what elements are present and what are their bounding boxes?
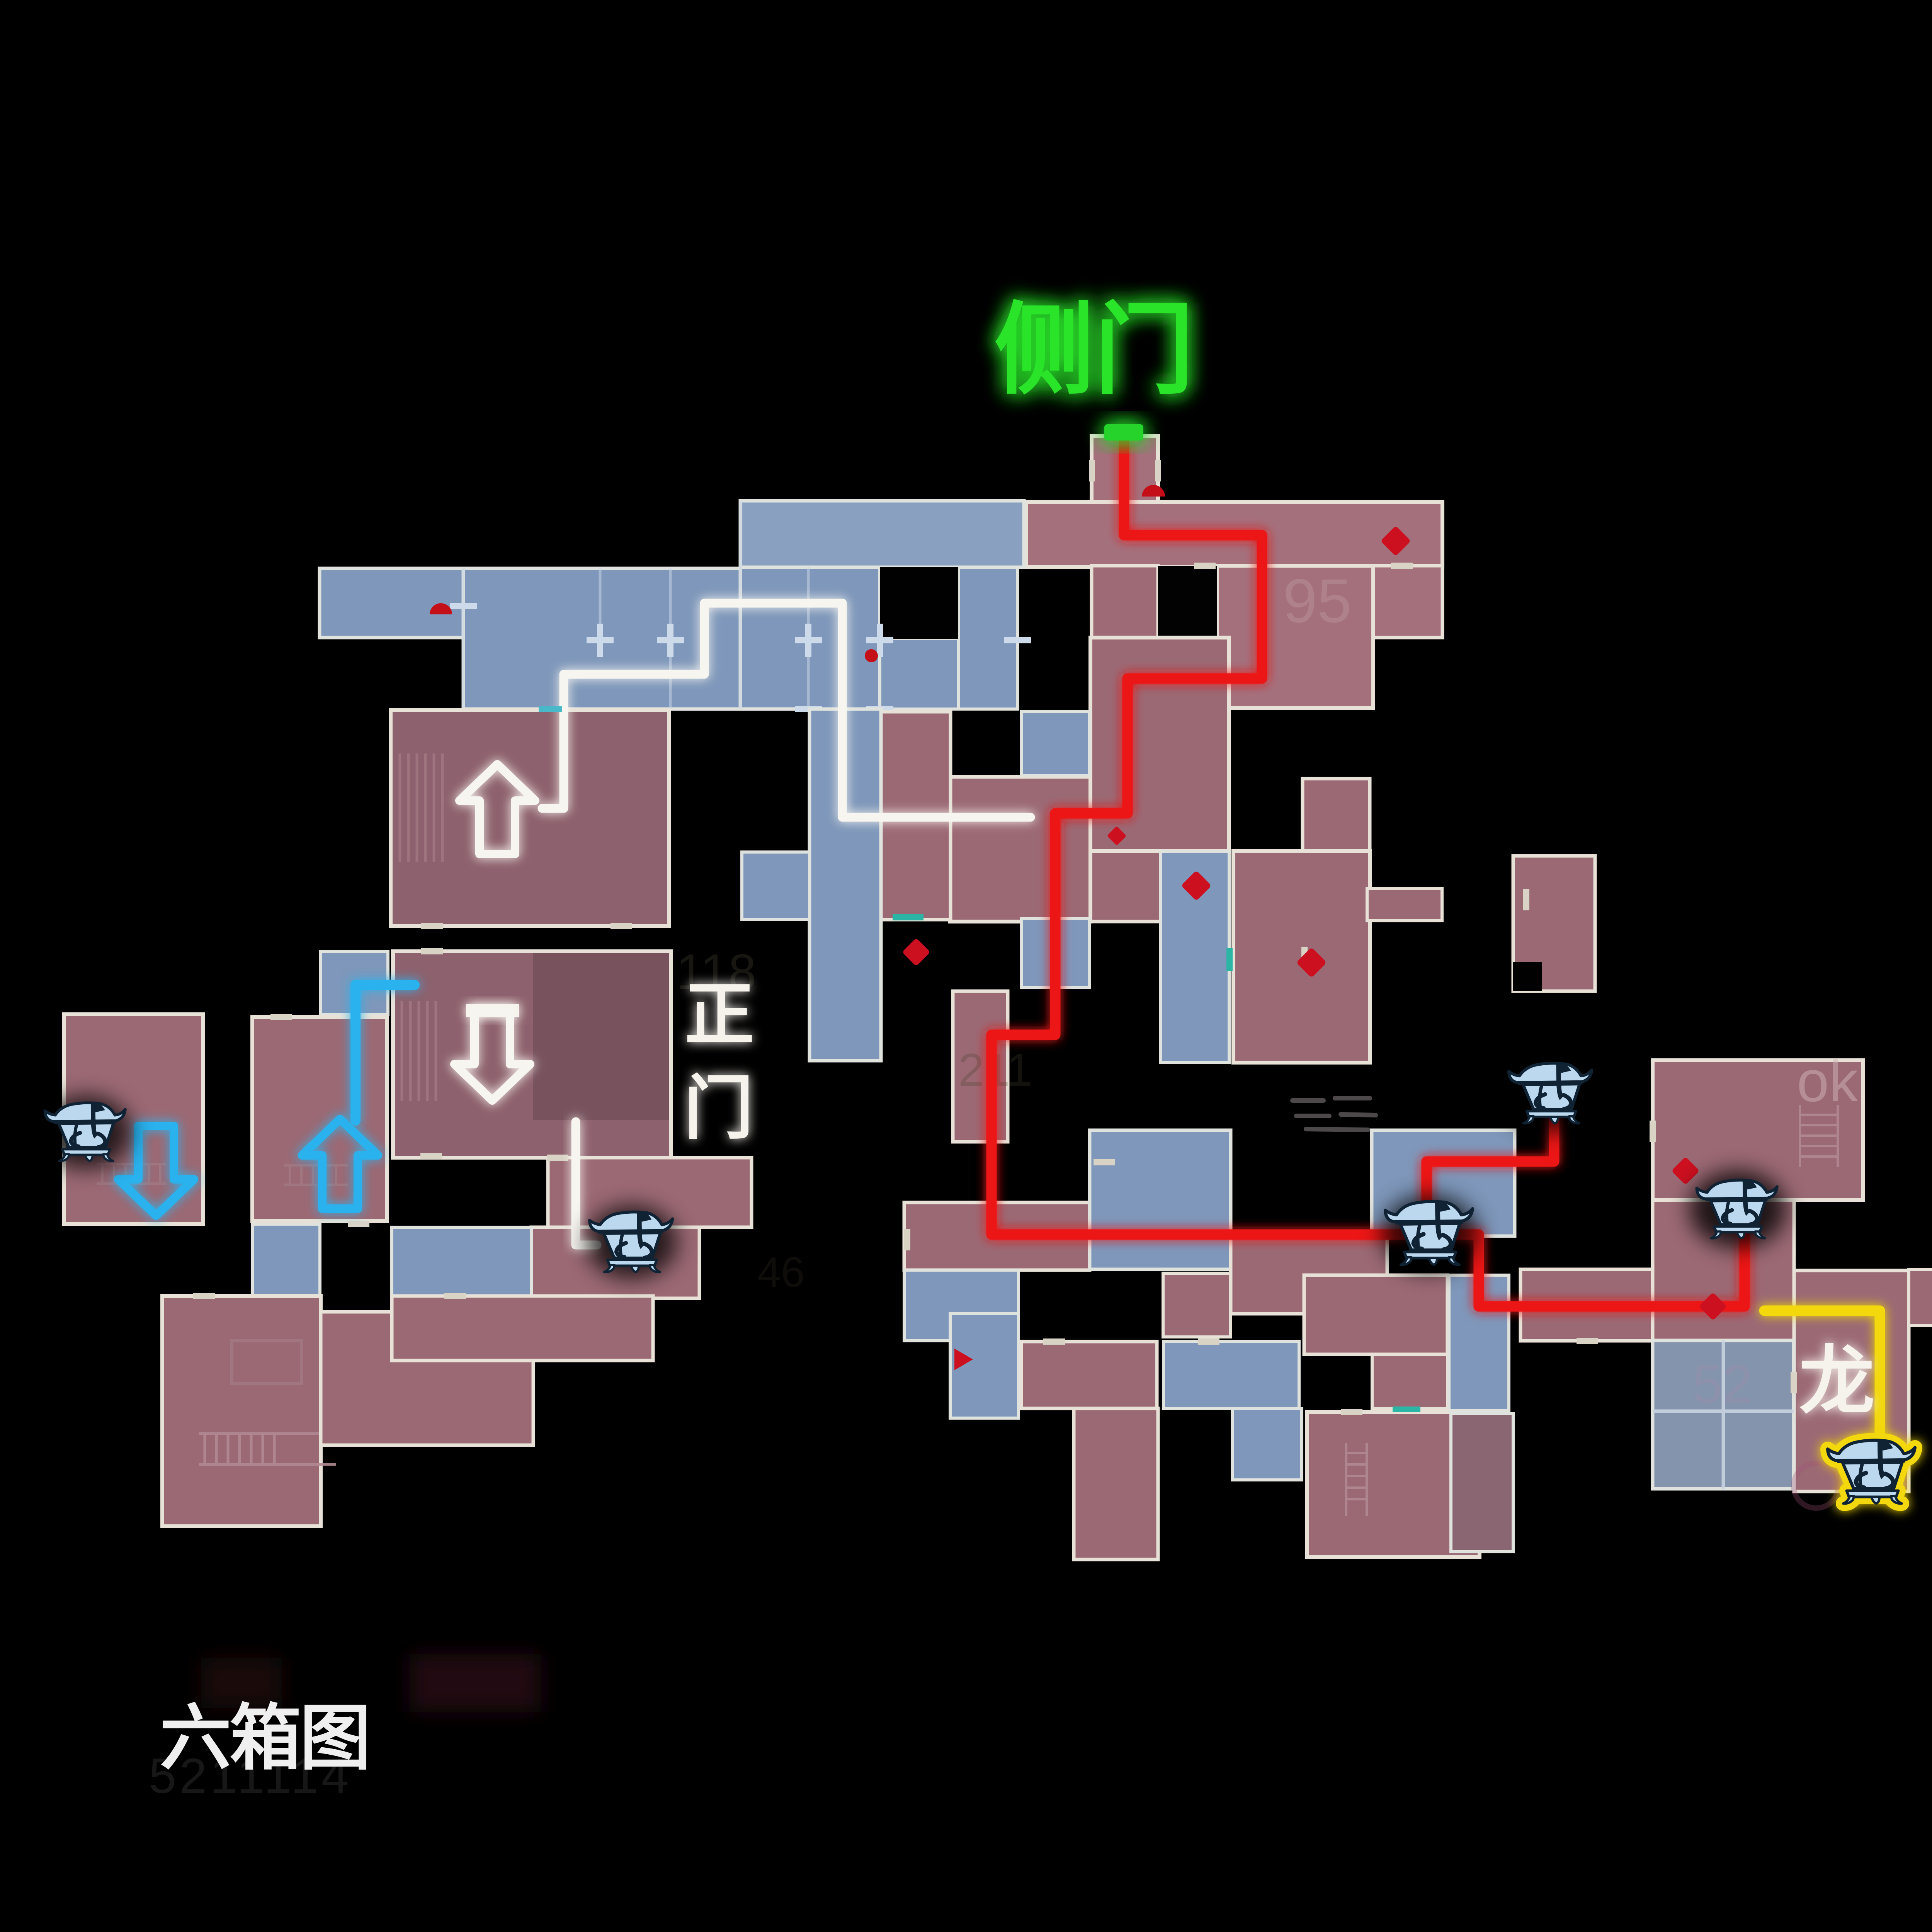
svg-text:ok: ok [1797, 1049, 1858, 1114]
svg-text:52: 52 [1692, 1354, 1753, 1414]
svg-text:龙: 龙 [1799, 1339, 1875, 1423]
svg-text:46: 46 [757, 1248, 804, 1296]
svg-text:正: 正 [685, 976, 754, 1054]
svg-text:六箱图: 六箱图 [160, 1699, 370, 1778]
svg-text:门: 门 [684, 1070, 753, 1147]
svg-text:95: 95 [1283, 566, 1352, 635]
svg-text:侧门: 侧门 [995, 294, 1194, 406]
